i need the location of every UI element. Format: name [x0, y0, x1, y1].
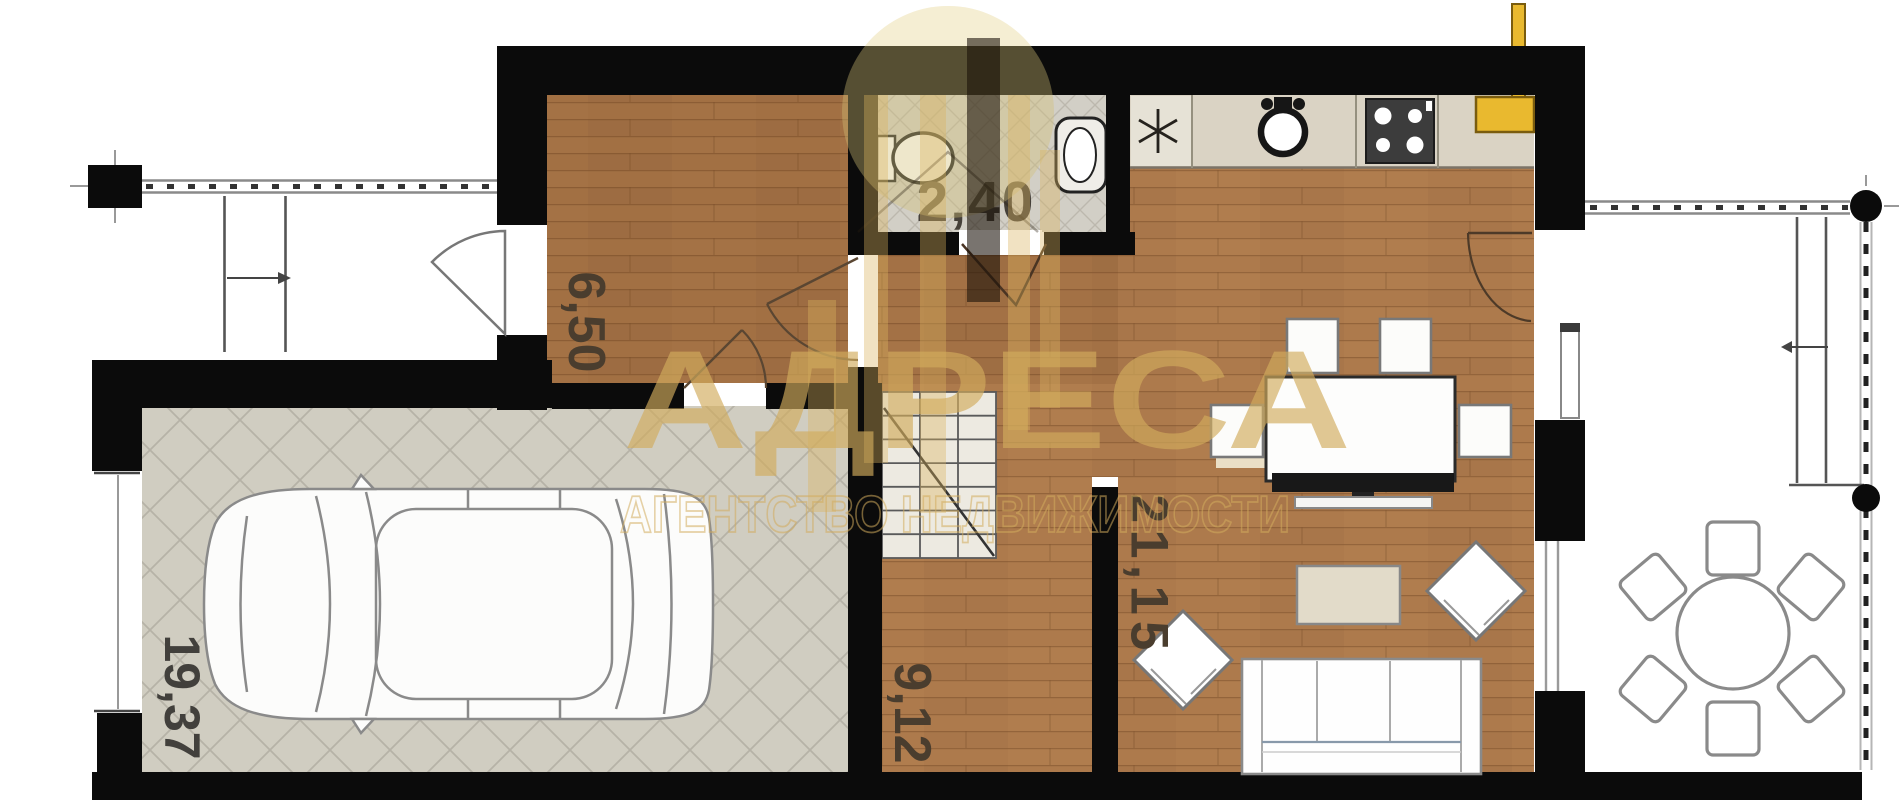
svg-text:6,50: 6,50 [557, 271, 615, 372]
svg-text:АГЕНТСТВО НЕДВИЖИМОСТИ: АГЕНТСТВО НЕДВИЖИМОСТИ [620, 486, 1290, 544]
svg-text:АДРЕСА: АДРЕСА [623, 321, 1351, 478]
svg-text:19,37: 19,37 [154, 634, 210, 759]
svg-text:9,12: 9,12 [883, 662, 941, 763]
